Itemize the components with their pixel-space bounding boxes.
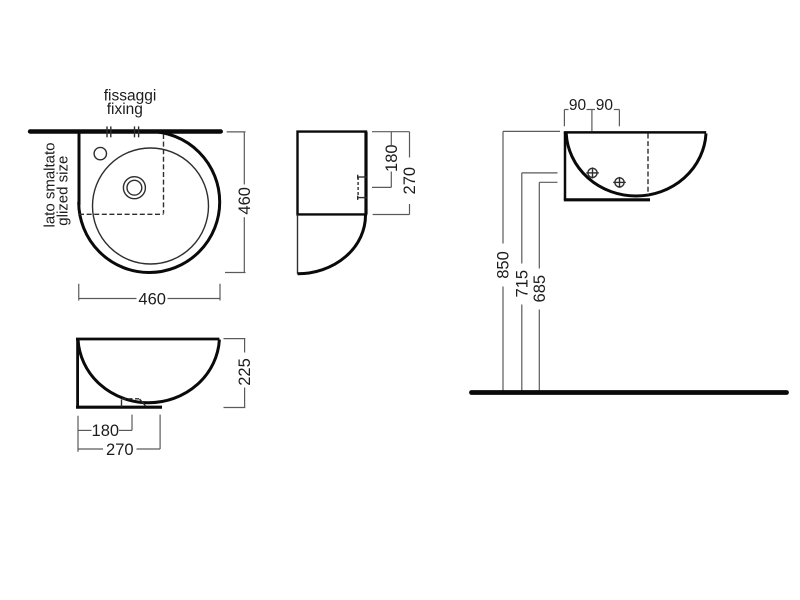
- svg-text:180: 180: [92, 422, 120, 440]
- svg-text:715: 715: [513, 270, 531, 298]
- svg-text:460: 460: [236, 187, 254, 215]
- svg-text:90: 90: [596, 97, 614, 114]
- svg-text:glized size: glized size: [54, 156, 71, 226]
- svg-text:270: 270: [106, 441, 134, 459]
- svg-text:270: 270: [401, 167, 419, 195]
- svg-text:460: 460: [138, 290, 166, 308]
- svg-text:fixing: fixing: [107, 101, 143, 118]
- svg-text:850: 850: [495, 251, 513, 279]
- svg-text:225: 225: [236, 358, 254, 386]
- svg-text:90: 90: [569, 97, 587, 114]
- svg-text:180: 180: [383, 144, 401, 172]
- svg-text:685: 685: [531, 275, 549, 303]
